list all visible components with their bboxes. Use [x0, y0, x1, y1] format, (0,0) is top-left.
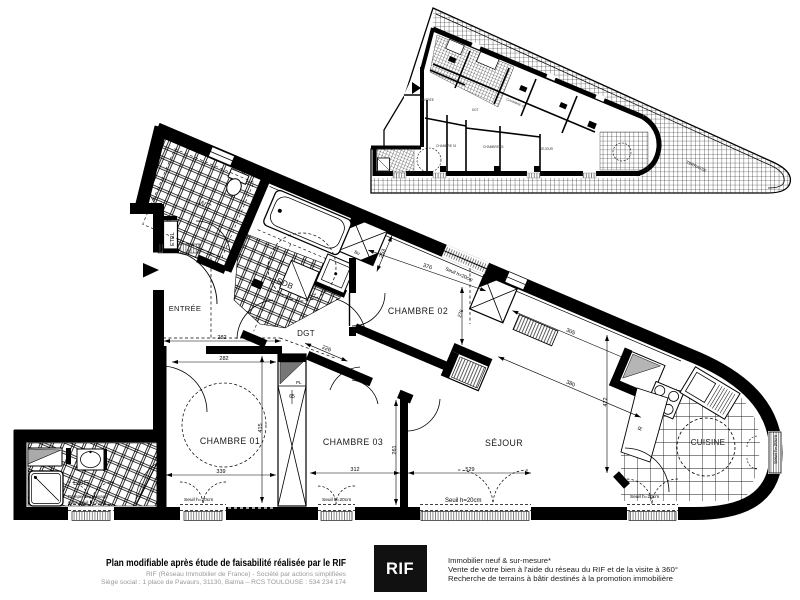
svg-text:DGT: DGT	[297, 329, 315, 338]
svg-text:Vente de votre bien à l'aide d: Vente de votre bien à l'aide du réseau d…	[448, 566, 678, 574]
svg-text:Seuil h=20cm: Seuil h=20cm	[445, 498, 482, 504]
svg-text:Seuil h=20cm: Seuil h=20cm	[630, 494, 659, 500]
svg-text:CHAMBRE 01: CHAMBRE 01	[200, 436, 260, 446]
svg-text:Pompe de relevage: Pompe de relevage	[68, 494, 108, 499]
svg-text:DGT: DGT	[472, 108, 479, 112]
svg-text:SÉJOUR: SÉJOUR	[485, 438, 523, 448]
svg-text:Seuil h=20cm: Seuil h=20cm	[322, 497, 351, 503]
svg-text:339: 339	[216, 469, 225, 475]
svg-text:RIF: RIF	[386, 560, 414, 578]
svg-text:Siège social : 1 place de Pava: Siège social : 1 place de Pavaurs, 31130…	[101, 580, 347, 586]
svg-text:Immobilier neuf & sur-mesure*: Immobilier neuf & sur-mesure*	[448, 558, 551, 565]
svg-text:Plan modifiable après étude de: Plan modifiable après étude de faisabili…	[106, 558, 346, 569]
svg-text:Seuil h=20cm: Seuil h=20cm	[773, 435, 779, 464]
svg-text:312: 312	[350, 467, 359, 473]
svg-text:CHAMBRE 01: CHAMBRE 01	[436, 144, 457, 148]
svg-text:65: 65	[289, 394, 295, 400]
svg-text:415: 415	[258, 423, 264, 432]
svg-text:SDE: SDE	[73, 478, 89, 487]
svg-text:ETEL: ETEL	[170, 232, 176, 246]
svg-text:282: 282	[219, 356, 228, 362]
svg-text:CHAMBRE 03: CHAMBRE 03	[323, 437, 383, 447]
svg-text:261: 261	[392, 445, 398, 454]
svg-text:ENTRÉE: ENTRÉE	[169, 304, 202, 313]
svg-text:472: 472	[603, 397, 609, 406]
svg-text:CHAMBRE 03: CHAMBRE 03	[483, 145, 504, 149]
svg-text:CHAMBRE 02: CHAMBRE 02	[388, 306, 448, 316]
svg-text:CUISINE: CUISINE	[691, 438, 726, 447]
svg-text:529: 529	[465, 467, 474, 473]
svg-text:Seuil h=20cm: Seuil h=20cm	[184, 497, 213, 503]
svg-text:282: 282	[217, 335, 226, 341]
svg-text:RIF (Réseau Immobilier de Fran: RIF (Réseau Immobilier de France) - Soci…	[146, 572, 346, 578]
svg-text:SEJOUR: SEJOUR	[540, 147, 554, 151]
svg-text:sous seuil h=20cm: sous seuil h=20cm	[68, 500, 106, 505]
svg-text:PL: PL	[296, 380, 302, 385]
svg-text:ENTREE: ENTREE	[421, 98, 434, 102]
svg-text:Recherche de terrains à bâtir: Recherche de terrains à bâtir destinés à…	[448, 576, 673, 583]
